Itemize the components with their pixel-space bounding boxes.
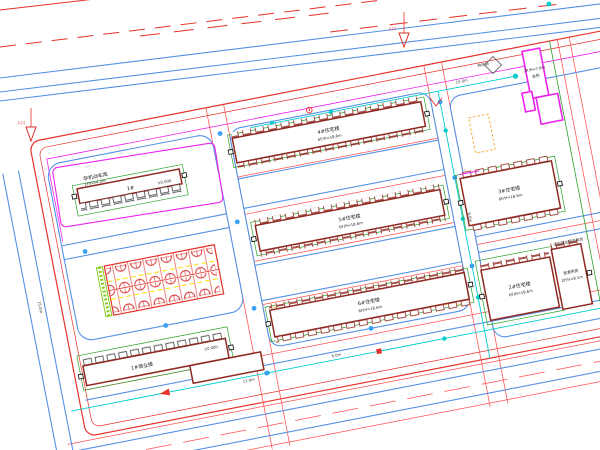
entrance-top: 入口: [388, 12, 409, 47]
site-frame: 非机动车库 1F/H=4.2m 1# ±0.000 4#住宅楼 6F/H=18.…: [0, 17, 600, 450]
dim-left: 15.0m: [37, 301, 44, 314]
valve-marker: [376, 348, 382, 354]
entrance-left: 入口: [17, 108, 36, 141]
building-shop: 1#商业楼 ±0.000 11.0m: [75, 321, 266, 414]
building-garage: 非机动车库 1F/H=4.2m 1# ±0.000: [69, 156, 191, 216]
building-clubhouse: 2F/H=7.8m 会所: [514, 46, 563, 126]
cad-site-plan: 非机动车库 1F/H=4.2m 1# ±0.000 4#住宅楼 6F/H=18.…: [0, 0, 600, 450]
entry-left-label: 入口: [17, 120, 25, 125]
parking-court: [96, 245, 223, 317]
building-r2: 2#住宅楼 6F/H=18.6m: [473, 246, 564, 325]
site-plan-svg: 非机动车库 1F/H=4.2m 1# ±0.000 4#住宅楼 6F/H=18.…: [0, 0, 600, 450]
entry-top-label: 入口: [388, 26, 396, 31]
shop-dimension: 11.0m: [242, 376, 255, 383]
building-r6: 6#住宅楼 6F/H=18.6m: [262, 265, 476, 343]
flow-arrow: [159, 389, 170, 398]
dim-bottom: 6.0m: [331, 352, 342, 359]
utility-node-dot: [547, 2, 552, 7]
dim-top: 15.0m: [455, 77, 468, 84]
